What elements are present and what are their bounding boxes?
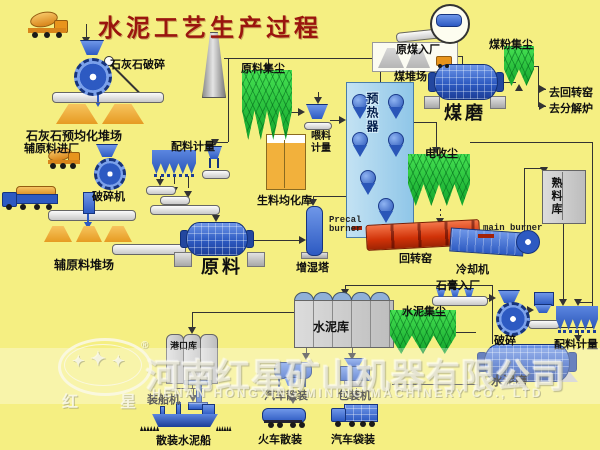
wheel <box>34 204 40 210</box>
label-raw-meal-silo: 生料均化库 <box>257 192 312 208</box>
label-port-silo: 港口库 <box>170 339 197 352</box>
flow-arrow <box>156 179 164 186</box>
label-coal-yard: 煤堆场 <box>394 68 427 84</box>
wheel <box>335 421 341 427</box>
coal-tippler-drum <box>436 14 462 27</box>
cyclone <box>352 132 368 148</box>
stockpile <box>76 226 102 242</box>
stockpile <box>102 104 144 124</box>
label-truck-bag: 汽车袋装 <box>331 431 375 447</box>
bag-truck-cab <box>331 408 346 422</box>
hopper-leg <box>209 158 211 168</box>
wheel <box>56 32 62 38</box>
label-to-rotary-kiln: 去回转窑 <box>549 84 593 100</box>
logo-star-icon: ✦ <box>72 352 85 370</box>
wheel <box>438 64 442 68</box>
gypsum-bin <box>534 292 554 306</box>
feed-hopper <box>306 104 328 119</box>
flow-arrow <box>212 215 220 222</box>
wheel <box>50 163 56 169</box>
conveyor <box>202 170 230 179</box>
gypsum-crusher <box>496 302 530 336</box>
flow-line <box>592 142 593 328</box>
label-raw-dust: 原料集尘 <box>241 60 285 76</box>
label-train-bulk: 火车散装 <box>258 431 302 447</box>
flow-line <box>412 122 436 123</box>
label-main-burner: main burner <box>483 223 542 233</box>
label-coal-dust: 煤粉集尘 <box>489 36 533 52</box>
flow-line <box>188 176 189 188</box>
wheel <box>44 32 50 38</box>
label-clinker-silo: 熟料库 <box>548 177 564 216</box>
ship-hull <box>150 414 220 427</box>
raw-mill <box>186 222 248 256</box>
label-ship-loader: 装船机 <box>147 391 180 407</box>
wheel <box>20 204 26 210</box>
cooler-fan <box>516 230 540 254</box>
mill-pedestal <box>490 96 506 109</box>
water-waves <box>140 426 160 431</box>
label-packing-machine: 包装机 <box>338 387 371 403</box>
flow-arrow <box>188 327 196 334</box>
coal-dust-collector <box>504 46 534 86</box>
flow-arrow <box>489 294 496 302</box>
label-bulk-ship: 散装水泥船 <box>156 432 211 448</box>
flow-line <box>228 58 229 142</box>
esp-collector <box>408 154 470 206</box>
registered-mark: ® <box>141 340 148 351</box>
wheel <box>299 422 305 428</box>
conveyor <box>146 186 176 195</box>
flow-arrow <box>339 116 346 124</box>
label-gypsum-entry: 石膏入厂 <box>436 277 480 293</box>
aux-crusher <box>94 158 126 190</box>
label-cement-mill: 水泥磨 <box>491 372 527 389</box>
conveyor <box>150 205 220 215</box>
silo-divider <box>284 140 285 188</box>
mill-pedestal <box>174 252 192 267</box>
flow-arrow <box>559 299 567 306</box>
label-gypsum-crusher: 破碎 <box>494 332 516 348</box>
label-esp: 电收尘 <box>425 145 458 161</box>
feeder-dots <box>154 174 194 177</box>
port-silo <box>200 334 218 384</box>
flow-line <box>174 176 175 184</box>
label-to-calciner: 去分解炉 <box>549 100 593 116</box>
label-crusher-machine: 破碎机 <box>92 188 125 204</box>
feeder-dots <box>558 330 596 333</box>
flow-arrow <box>574 299 582 306</box>
wheel <box>60 163 66 169</box>
label-coal-mill: 煤磨 <box>444 99 486 125</box>
flow-line <box>470 142 592 143</box>
wheel <box>369 421 375 427</box>
label-cooler: 冷却机 <box>456 261 489 277</box>
bag-truck-cargo <box>344 404 378 422</box>
truck-bed <box>14 194 58 204</box>
label-cement-silo: 水泥库 <box>313 318 349 335</box>
cement-process-diagram: 水泥工艺生产过程 石灰石破碎 石灰石预均化堆场 辅原料进厂 破碎机 辅原料堆场 … <box>0 0 600 450</box>
label-raw-coal-entry: 原煤入厂 <box>396 41 440 57</box>
hopper-leg <box>217 158 219 168</box>
logo-oval-inner <box>64 344 142 386</box>
humidifier-tower <box>306 206 323 256</box>
wheel <box>290 422 296 428</box>
stockpile <box>56 104 98 124</box>
label-precal-burner-2: burner <box>329 224 361 234</box>
flow-line <box>563 222 564 300</box>
conveyor <box>160 196 190 205</box>
bulk-loader-tank <box>274 362 312 379</box>
water-waves <box>216 426 232 431</box>
flow-line <box>252 240 302 241</box>
bulk-loader-funnel <box>284 377 298 386</box>
wheel <box>445 64 449 68</box>
page-title: 水泥工艺生产过程 <box>98 8 322 43</box>
logo-text-right: 星 <box>120 388 136 412</box>
wheel <box>32 32 38 38</box>
flow-line <box>456 332 476 333</box>
flow-line <box>192 312 294 313</box>
wheel <box>277 422 283 428</box>
cyclone <box>360 170 376 186</box>
logo-star-icon: ✦ <box>90 348 106 371</box>
gypsum-bin-funnel <box>534 304 552 313</box>
label-rotary-kiln: 回转窑 <box>399 250 432 266</box>
cyclone <box>388 132 404 148</box>
flow-arrow <box>299 236 306 244</box>
label-raw-mill: 原料 <box>201 253 243 279</box>
label-truck-bulk: 汽车散装 <box>264 387 308 403</box>
raw-meal-silo <box>266 134 306 190</box>
label-aux-entry: 辅原料进厂 <box>24 140 79 156</box>
conveyor <box>528 320 560 329</box>
logo-oval-outer <box>58 338 152 396</box>
flow-arrow <box>298 108 305 116</box>
wheel <box>268 422 274 428</box>
flow-arrow <box>515 84 523 91</box>
gypsum-crusher-hopper <box>498 290 520 303</box>
flow-line <box>392 384 478 385</box>
label-aux-yard: 辅原料堆场 <box>54 256 114 273</box>
cyclone <box>378 198 394 214</box>
aux-hopper <box>96 144 118 157</box>
coal-mill <box>434 64 498 100</box>
packer-body <box>340 366 370 381</box>
feeder-belt <box>304 122 332 130</box>
flow-line <box>224 58 381 59</box>
raw-dust-collector <box>242 70 292 140</box>
ship-loader-boom <box>184 380 212 385</box>
mill-pedestal <box>247 252 265 267</box>
stockpile <box>44 226 72 242</box>
label-preheater: 预热器 <box>364 92 381 134</box>
stockpile <box>104 226 132 242</box>
flow-arrow <box>302 353 310 360</box>
label-limestone-crushing: 石灰石破碎 <box>110 56 165 72</box>
wheel <box>6 204 12 210</box>
label-cement-dust: 水泥集尘 <box>402 303 446 319</box>
logo-text-left: 红 <box>62 388 78 412</box>
flow-arrow <box>539 85 546 93</box>
mill-pedestal <box>424 96 440 109</box>
limestone-crusher <box>74 58 112 96</box>
label-batching-right: 配料计量 <box>554 336 598 352</box>
label-batching-left: 配料计量 <box>171 138 215 154</box>
cyclone <box>388 94 404 110</box>
wheel <box>360 421 366 427</box>
wheel <box>349 421 355 427</box>
flow-arrow <box>539 102 546 110</box>
logo-star-icon: ✦ <box>112 352 125 370</box>
wheel <box>70 163 76 169</box>
flow-arrow <box>314 97 322 104</box>
label-humidifier: 增湿塔 <box>296 259 329 275</box>
label-feeding-metering: 喂料计量 <box>308 131 334 154</box>
conveyor <box>52 92 164 103</box>
main-burner-pipe <box>478 234 494 238</box>
flow-line <box>558 327 592 328</box>
wheel <box>46 204 52 210</box>
